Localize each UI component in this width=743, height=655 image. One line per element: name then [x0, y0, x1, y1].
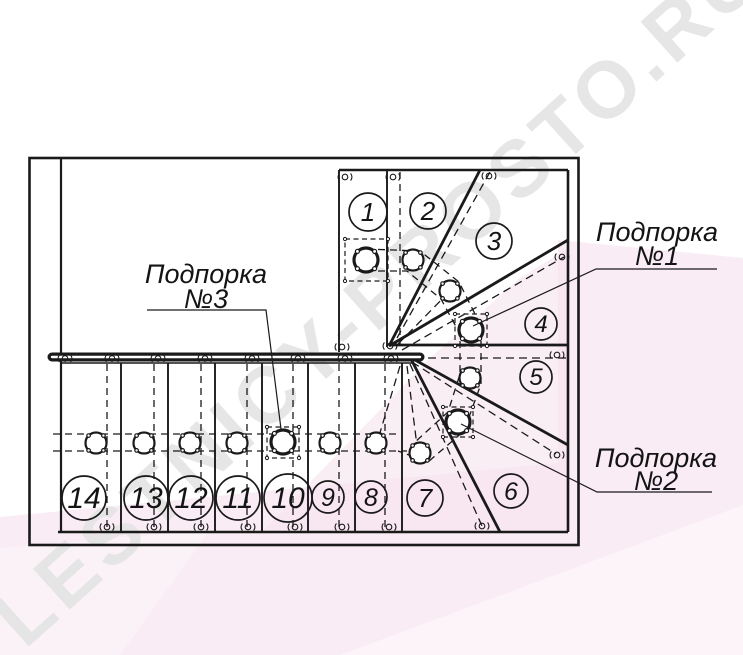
- svg-text:4: 4: [534, 311, 547, 338]
- stair-plan-page: LESTNICY-PROSTO.RU: [0, 0, 743, 655]
- svg-text:2: 2: [420, 196, 436, 226]
- svg-text:1: 1: [361, 197, 375, 227]
- support-post-top: [354, 248, 378, 272]
- svg-text:14: 14: [67, 482, 100, 515]
- support-post-1: [459, 318, 483, 342]
- svg-text:5: 5: [529, 364, 543, 391]
- step-number-badge-1: 1: [349, 193, 387, 231]
- svg-text:7: 7: [418, 483, 434, 513]
- step-number-badge-13: 13: [124, 476, 168, 520]
- step-number-badge-11: 11: [216, 476, 260, 520]
- svg-text:11: 11: [222, 482, 253, 515]
- svg-text:№1: №1: [635, 241, 679, 271]
- svg-text:8: 8: [364, 484, 378, 512]
- support-post-3: [271, 430, 295, 454]
- support-post-2: [446, 410, 470, 434]
- svg-text:6: 6: [504, 478, 518, 506]
- svg-text:9: 9: [321, 484, 335, 512]
- svg-text:3: 3: [487, 226, 502, 256]
- staircase-drawing: LESTNICY-PROSTO.RU: [0, 0, 743, 655]
- svg-text:13: 13: [129, 482, 163, 515]
- svg-text:10: 10: [271, 482, 305, 515]
- svg-text:12: 12: [174, 482, 208, 515]
- step-number-badge-12: 12: [169, 476, 213, 520]
- step-number-badge-14: 14: [62, 476, 106, 520]
